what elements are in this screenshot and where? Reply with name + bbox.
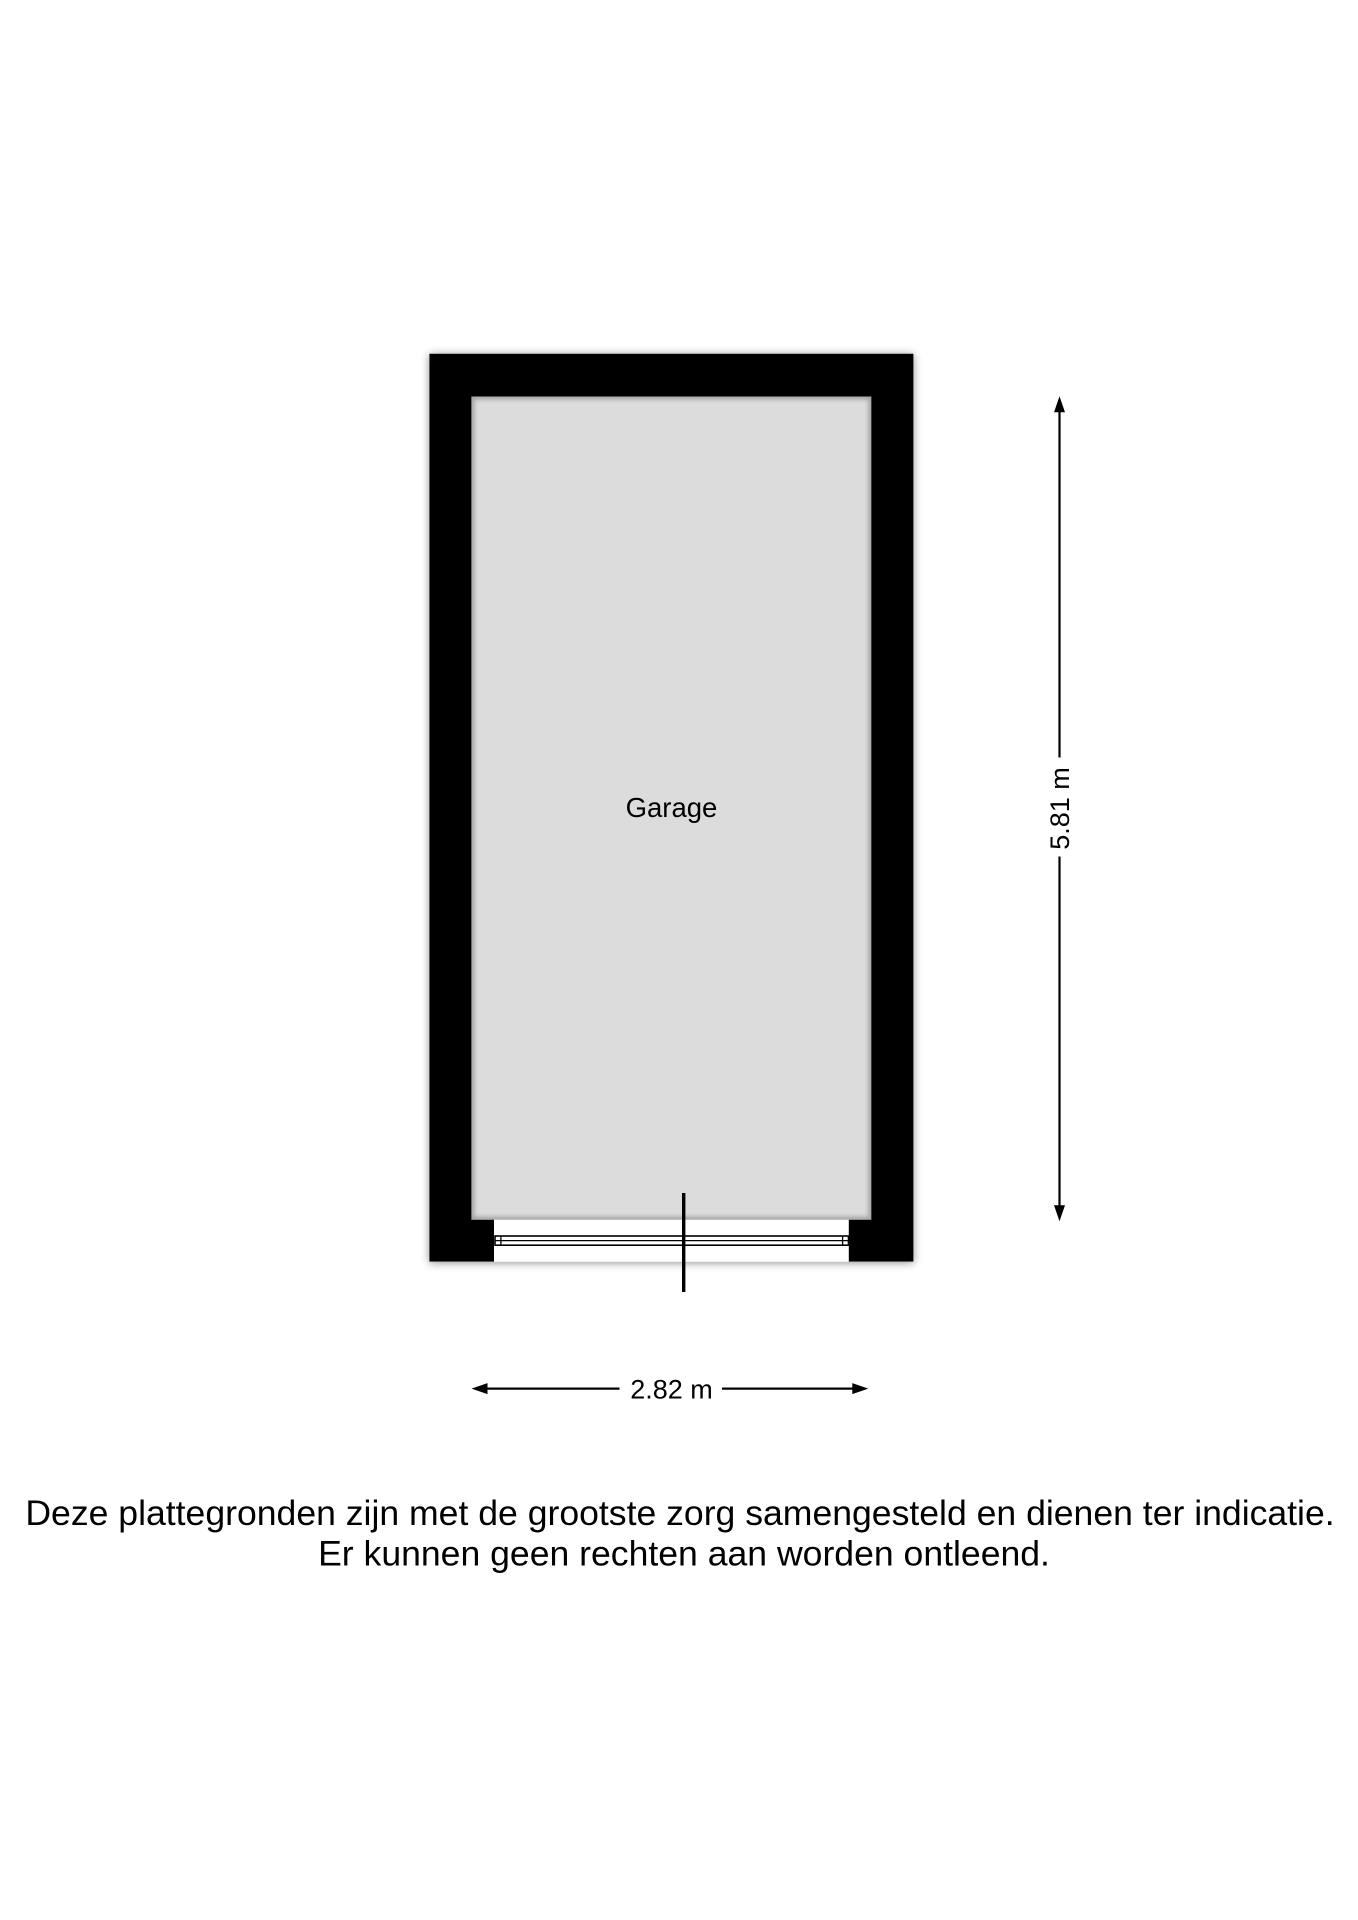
svg-text:5.81 m: 5.81 m [1045, 767, 1075, 850]
svg-text:Garage: Garage [626, 792, 718, 823]
svg-text:2.82 m: 2.82 m [630, 1375, 713, 1405]
svg-text:Er kunnen geen rechten aan wor: Er kunnen geen rechten aan worden ontlee… [318, 1534, 1050, 1574]
svg-text:Deze plattegronden zijn met de: Deze plattegronden zijn met de grootste … [25, 1493, 1334, 1533]
